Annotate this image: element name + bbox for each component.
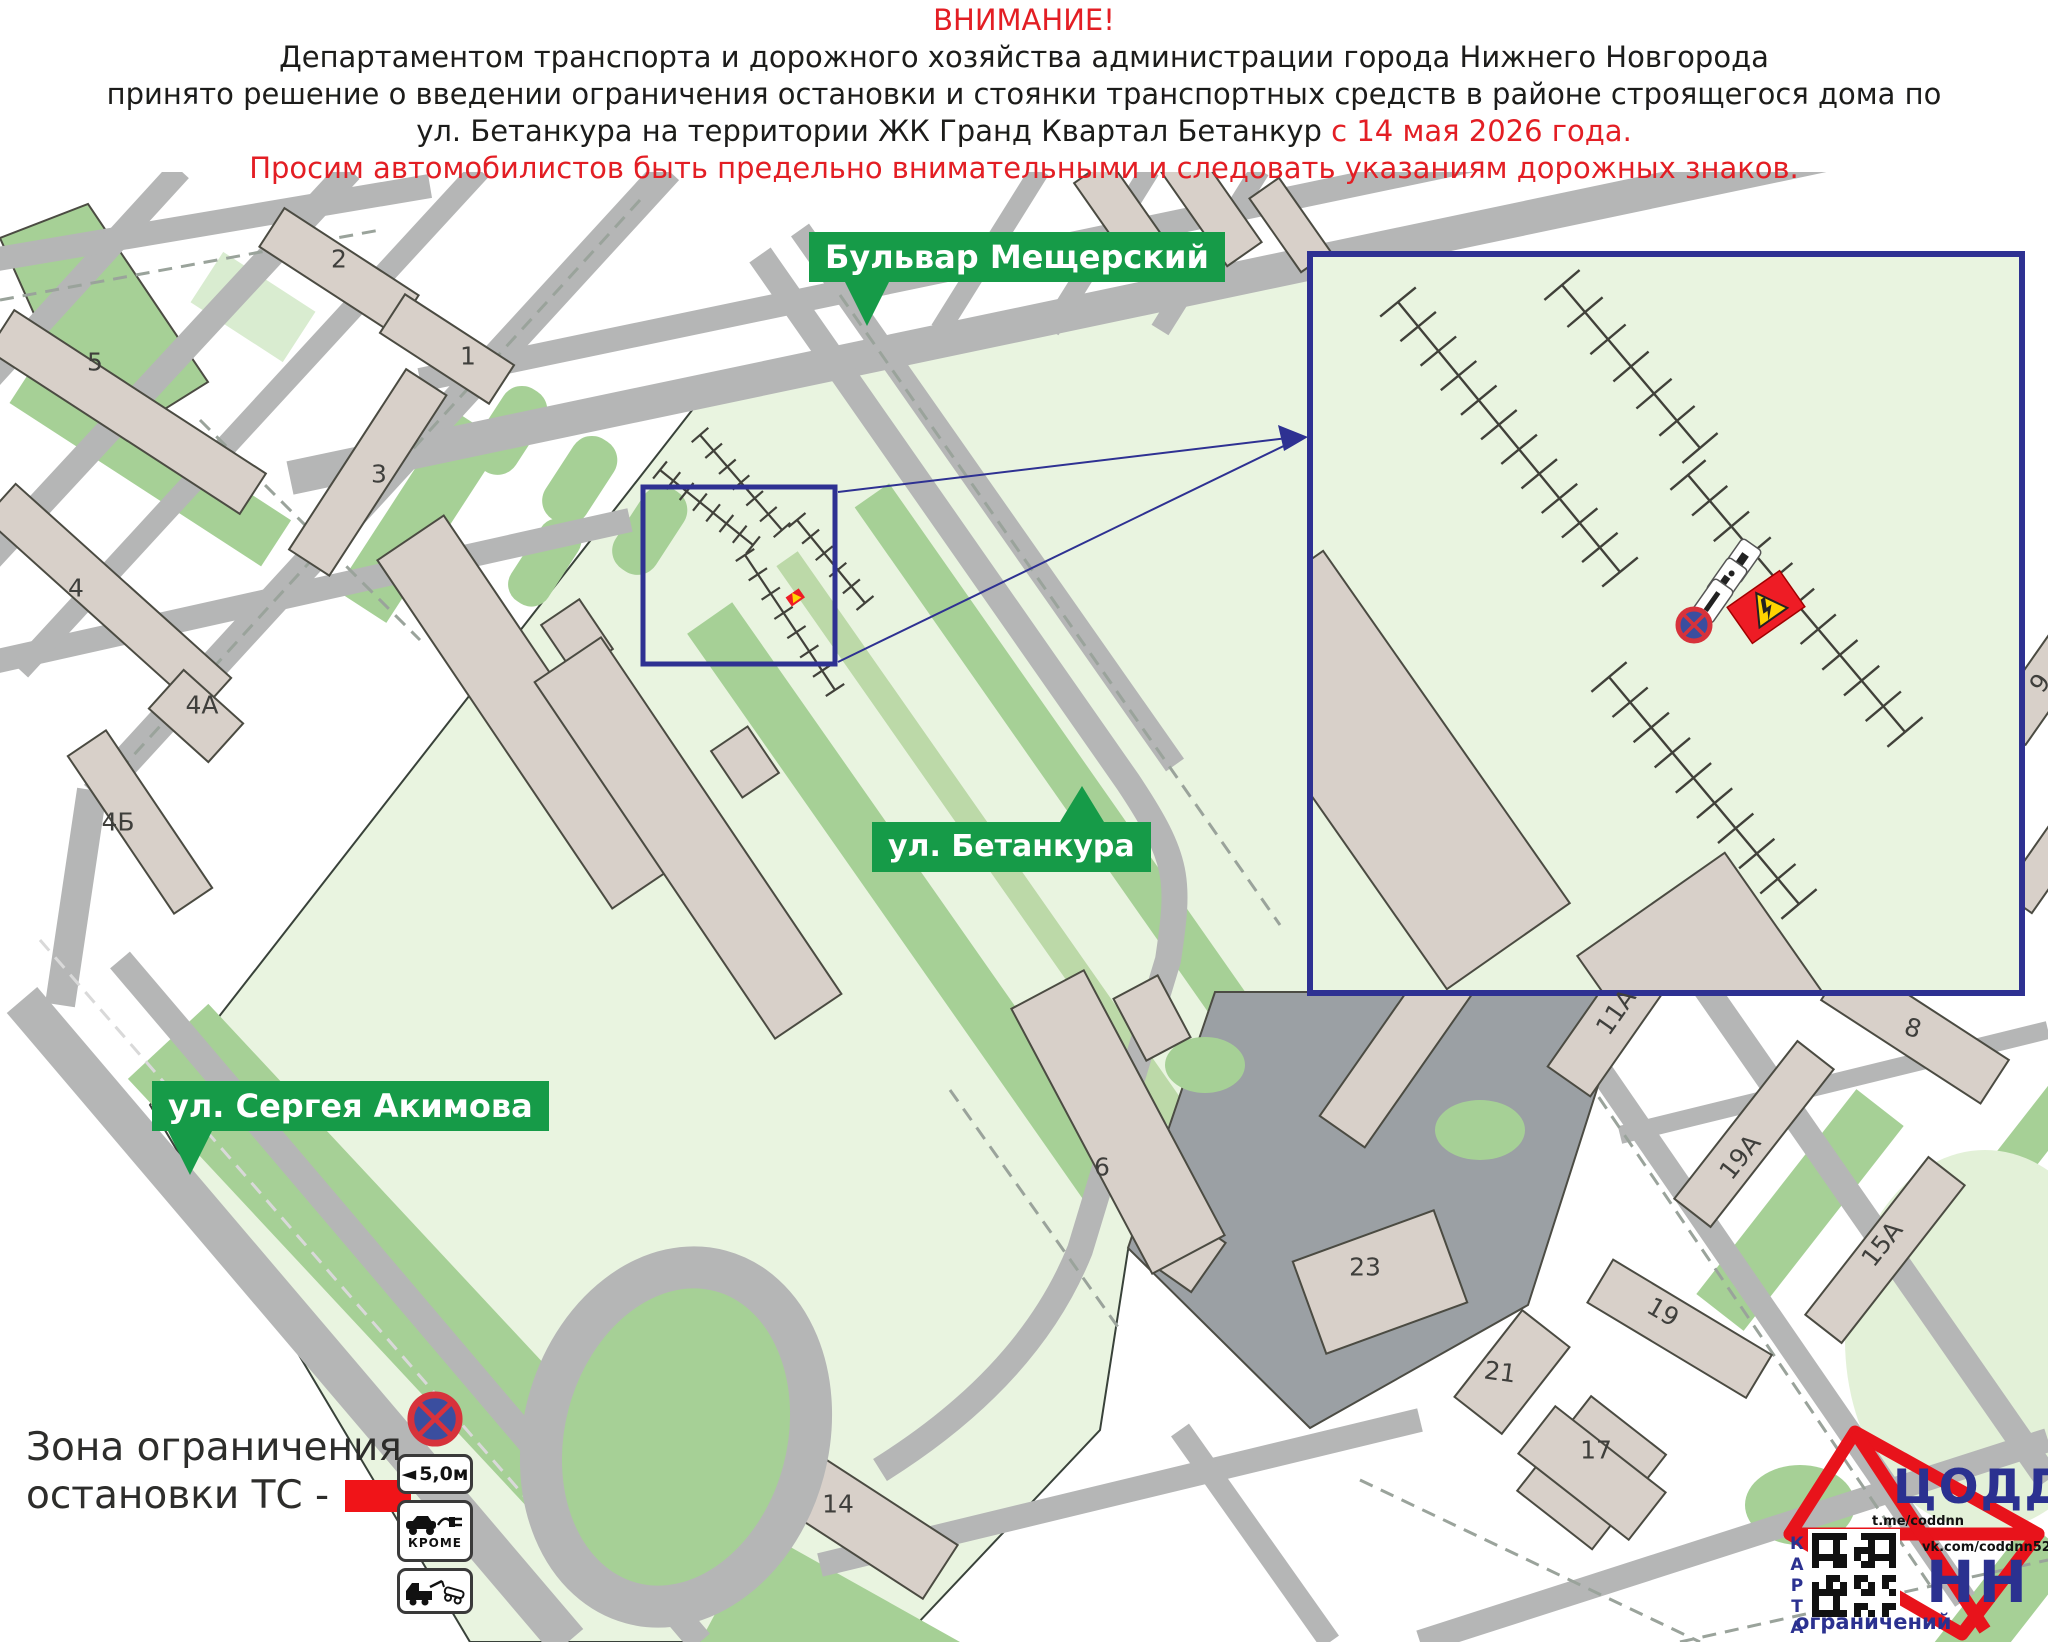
qr-code <box>1808 1529 1900 1621</box>
header-line4: ул. Бетанкура на территории ЖК Гранд Ква… <box>0 113 2048 150</box>
no-stopping-sign-icon <box>406 1390 464 1448</box>
poster: ВНИМАНИЕ! Департаментом транспорта и дор… <box>0 0 2048 1642</box>
street-label-text: ул. Бетанкура <box>888 829 1135 864</box>
street-label-text: Бульвар Мещерский <box>825 238 1209 276</box>
legend-signs: ◄ 5,0м КРОМЕ <box>396 1390 474 1614</box>
header-line3: принято решение о введении ограничения о… <box>0 76 2048 113</box>
tow-truck-icon <box>404 1575 466 1607</box>
no-stopping-sign-icon <box>1678 609 1710 641</box>
header-line5: Просим автомобилистов быть предельно вни… <box>0 150 2048 187</box>
legend-line2: остановки ТС - <box>26 1472 411 1520</box>
header-attention: ВНИМАНИЕ! <box>0 2 2048 39</box>
header-date: с 14 мая 2026 года. <box>1331 114 1632 148</box>
except-text: КРОМЕ <box>408 1536 462 1550</box>
distance-value: 5,0м <box>419 1463 468 1485</box>
distance-plate: ◄ 5,0м <box>397 1454 473 1494</box>
arrow-left-icon: ◄ <box>402 1463 417 1485</box>
street-label-akimova: ул. Сергея Акимова <box>152 1081 549 1131</box>
header-announcement: ВНИМАНИЕ! Департаментом транспорта и дор… <box>0 2 2048 187</box>
legend-line1: Зона ограничения <box>26 1424 411 1472</box>
label-pointer-icon <box>1060 786 1104 822</box>
header-line2: Департаментом транспорта и дорожного хоз… <box>0 39 2048 76</box>
label-pointer-icon <box>168 1131 212 1175</box>
street-label-text: ул. Сергея Акимова <box>168 1087 533 1125</box>
label-pointer-icon <box>845 282 889 326</box>
electric-car-except-plate: КРОМЕ <box>397 1500 473 1562</box>
street-label-meshchersky: Бульвар Мещерский <box>809 232 1225 282</box>
electric-car-icon <box>404 1512 466 1538</box>
legend: Зона ограничения остановки ТС - <box>26 1424 411 1520</box>
tow-truck-plate <box>397 1568 473 1614</box>
street-label-betancourt: ул. Бетанкура <box>872 822 1151 872</box>
